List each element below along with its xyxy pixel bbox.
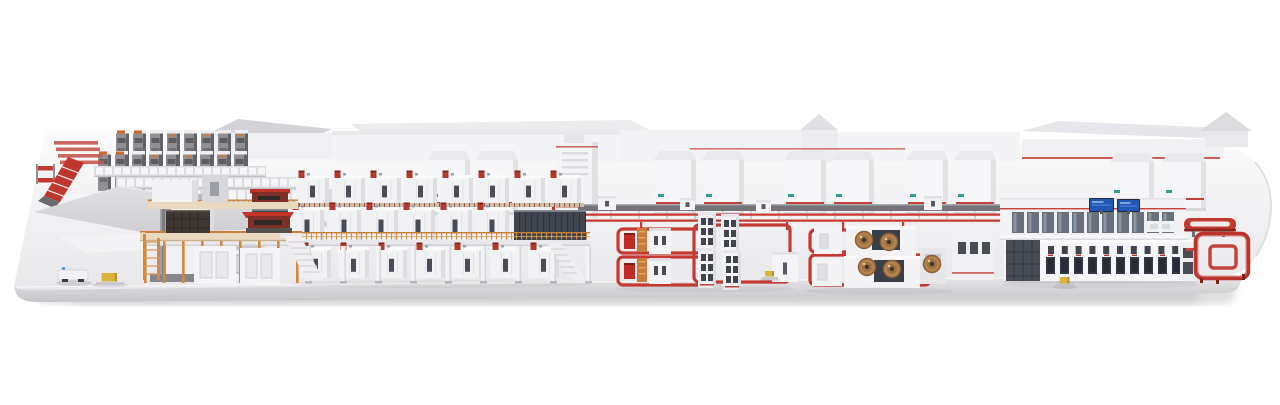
upper-window: [1103, 246, 1109, 254]
white-unit-window: [958, 242, 966, 254]
module-vent: [301, 205, 304, 208]
walkway-tick: [549, 203, 550, 207]
coil-machine-top: [844, 256, 920, 259]
shelf-cell: [249, 168, 256, 175]
upper-window: [1076, 246, 1082, 254]
winder-slot: [654, 236, 658, 245]
shelf-cell: [114, 168, 121, 175]
tower-cap: [723, 250, 741, 253]
rack-cap: [166, 151, 179, 155]
lower-window-inner: [1104, 259, 1110, 272]
red-shelf-bar: [56, 148, 100, 152]
tower-window: [701, 254, 706, 261]
module-red-valve: [404, 204, 410, 211]
module-seam: [511, 253, 512, 274]
vent-top-unit: [564, 135, 584, 143]
module-valve-cap: [299, 171, 305, 173]
shelf-cell: [258, 168, 265, 175]
module-side: [505, 178, 509, 203]
module-vent: [379, 173, 382, 176]
module-side: [365, 250, 369, 278]
module-vent: [343, 173, 346, 176]
cabinet-roof: [906, 151, 948, 160]
rack-band: [237, 138, 245, 143]
walkway-tick: [314, 203, 315, 207]
rack-cap: [167, 130, 180, 134]
module-red-valve: [515, 172, 521, 179]
module-seam: [560, 181, 561, 199]
module-vent: [449, 205, 452, 208]
walkway-tick: [319, 203, 320, 207]
module-seam: [344, 181, 345, 199]
coil-glint: [928, 260, 930, 262]
coil-box-door: [818, 264, 827, 280]
coil-box-door: [820, 234, 828, 248]
cabinet-roof: [784, 151, 826, 160]
tower-side: [713, 212, 716, 252]
shelf-cell: [177, 168, 184, 175]
module-red-valve: [330, 204, 336, 211]
module-valve-cap: [407, 171, 413, 173]
module-red-valve: [551, 172, 557, 179]
red-track-line: [566, 220, 1008, 222]
glass-reflection: [1134, 213, 1137, 232]
walkway-tick: [519, 203, 520, 207]
module-seam: [549, 253, 550, 274]
module-side: [403, 250, 407, 278]
walkway-tick: [579, 203, 580, 207]
mezz-module-side: [192, 180, 198, 202]
module-seam: [426, 181, 427, 199]
rack-cap: [234, 151, 247, 155]
cluster-shadow: [805, 288, 955, 295]
module-seam: [534, 181, 535, 199]
walkway-tick: [459, 203, 460, 207]
module-valve-cap: [443, 171, 449, 173]
module-side: [327, 250, 331, 278]
shelf-cell: [231, 168, 238, 175]
cabinet-roof: [1162, 153, 1206, 162]
upper-window: [1172, 246, 1178, 254]
module-side: [357, 210, 361, 240]
walkway-tick: [569, 203, 570, 207]
station-top: [772, 252, 798, 255]
walkway-tick: [544, 203, 545, 207]
vent-red-stripe: [556, 146, 598, 148]
module-side: [441, 250, 445, 278]
screen-line: [1092, 205, 1111, 206]
coil-glint: [860, 236, 862, 238]
tower-window: [733, 266, 738, 273]
rack-band: [117, 159, 125, 164]
cabinet-roof: [476, 151, 518, 160]
module-red-valve: [479, 172, 485, 179]
walkway-tick: [529, 203, 530, 207]
module-seam: [435, 253, 436, 274]
walkway-tick: [304, 203, 305, 207]
frame-rung: [639, 231, 646, 233]
walkway-tick: [429, 203, 430, 207]
station-top: [680, 198, 695, 201]
column-shade: [415, 246, 417, 283]
lower-window-inner: [1118, 259, 1124, 272]
rack-cap: [184, 130, 197, 134]
machine-shadow: [1000, 282, 1200, 289]
module-seam: [318, 181, 319, 199]
cabinet-roof: [954, 151, 996, 160]
coater-roll-upper: [258, 196, 280, 200]
loop-leg: [1242, 274, 1245, 280]
module-door: [342, 220, 347, 234]
red-conveyor-stripe: [1190, 222, 1230, 227]
end-panel-rib: [555, 213, 556, 238]
walkway-tick: [514, 203, 515, 207]
tower-window: [733, 276, 738, 283]
screen-graph: [1120, 202, 1131, 204]
red-conveyor-lip: [1184, 229, 1236, 232]
column-shade: [520, 246, 522, 283]
walkway-tick: [384, 203, 385, 207]
walkway-tick: [484, 203, 485, 207]
cabinet-logo: [1114, 190, 1120, 193]
deck-edge: [146, 245, 590, 247]
module-door: [465, 259, 470, 272]
column-shade: [345, 246, 347, 283]
line-shadow: [290, 280, 590, 288]
red-shelf-bar: [58, 154, 102, 158]
module-door: [389, 259, 394, 272]
glass-reflection: [1014, 213, 1017, 232]
station-top: [598, 196, 616, 199]
tower-window: [708, 254, 713, 261]
station-slot: [605, 201, 609, 207]
module-vent: [451, 173, 454, 176]
mezz-post: [182, 241, 185, 283]
walkway-tick: [574, 203, 575, 207]
end-cap-window: [1183, 262, 1193, 274]
tower-window: [708, 274, 713, 281]
cabinet-logo: [788, 194, 794, 197]
walkway-tick: [394, 203, 395, 207]
module-red-valve: [478, 204, 484, 211]
agv-wheel: [62, 279, 68, 282]
tower-window: [726, 266, 731, 273]
mezz-deck-upper: [148, 202, 298, 209]
module-seam: [397, 253, 398, 274]
red-shelf-bar: [54, 141, 98, 145]
walkway-tick: [399, 203, 400, 207]
cabinet-red-stripe: [704, 202, 742, 204]
dark-wall-edge: [166, 210, 210, 212]
tower-window: [731, 230, 736, 237]
module-door: [490, 186, 495, 198]
rack-band: [202, 159, 210, 164]
rack-band: [100, 178, 108, 182]
module-side: [325, 178, 329, 203]
shelf-cell: [195, 168, 202, 175]
module-red-valve: [299, 172, 305, 179]
right-assembly-section: [1000, 198, 1196, 284]
rack-band: [135, 138, 143, 143]
red-line-buildings: [690, 148, 905, 150]
coil-core: [887, 240, 891, 244]
rack-orange-dash: [204, 135, 209, 137]
shelf-cell: [204, 168, 211, 175]
agv-wheel: [78, 279, 84, 282]
end-panel-rib: [579, 213, 580, 238]
rack-band: [134, 159, 142, 164]
rack-cap: [132, 151, 145, 155]
module-door: [305, 220, 310, 234]
shelf-cell: [253, 179, 260, 187]
pallet-box: [102, 273, 117, 282]
module-valve-cap: [478, 203, 484, 205]
tower-window: [731, 220, 736, 227]
cluster-shadow: [615, 286, 795, 293]
module-valve-cap: [335, 171, 341, 173]
lower-window-inner: [1076, 259, 1082, 272]
coil-core: [865, 265, 869, 269]
column-shade: [590, 246, 592, 283]
feeder-slot: [1150, 224, 1158, 229]
walkway-tick: [309, 203, 310, 207]
upper-window: [1117, 246, 1123, 254]
module-door: [416, 220, 421, 234]
walkway-tick: [354, 203, 355, 207]
module-seam: [354, 181, 355, 199]
rack-band: [219, 159, 227, 164]
module-red-valve: [455, 244, 461, 251]
rack-band: [168, 159, 176, 164]
cabinet-logo: [910, 194, 916, 197]
station-top: [924, 196, 942, 199]
module-vent: [387, 245, 390, 248]
rack-cap: [217, 151, 230, 155]
gallery-sill-shadow: [1000, 239, 1188, 241]
module-seam: [473, 253, 474, 274]
winder-red-cap: [624, 233, 635, 235]
glass-reflection: [1029, 213, 1032, 232]
module-red-valve: [371, 172, 377, 179]
walkway-tick: [554, 203, 555, 207]
shelf-cell: [136, 179, 143, 187]
glass-reflection: [1119, 213, 1122, 232]
column-shade: [380, 246, 382, 283]
module-seam: [390, 181, 391, 199]
rack-cap: [200, 151, 213, 155]
shelf-cell: [105, 168, 112, 175]
tower-cap: [698, 212, 716, 215]
winder-slot: [662, 266, 666, 275]
tower-window: [724, 240, 729, 247]
module-valve-cap: [515, 171, 521, 173]
module-vent: [463, 245, 466, 248]
end-panel-rib: [549, 213, 550, 238]
walkway-tick: [349, 203, 350, 207]
module-seam: [462, 181, 463, 199]
module-valve-cap: [379, 243, 385, 245]
loop-leg: [1200, 278, 1203, 283]
cabinet-door: [261, 254, 272, 278]
module-door: [562, 186, 567, 198]
rack-orange-dash: [152, 156, 157, 158]
lower-window-inner: [1048, 259, 1054, 272]
cabinet-logo: [958, 194, 964, 197]
module-valve-cap: [367, 203, 373, 205]
module-seam: [387, 253, 388, 274]
rack-orange-cap: [134, 131, 142, 134]
module-valve-cap: [551, 171, 557, 173]
lower-window-inner: [1132, 259, 1138, 272]
gable-mid: [800, 114, 838, 130]
gable-right-face: [1206, 131, 1248, 147]
frame-rung: [639, 243, 646, 245]
module-valve-cap: [330, 203, 336, 205]
walkway-tick: [504, 203, 505, 207]
shelf-cell: [235, 179, 242, 187]
tower-window: [708, 238, 713, 245]
feeder-slot: [1162, 224, 1170, 229]
tower-window: [701, 218, 706, 225]
winder-slot: [662, 236, 666, 245]
winder-box: [649, 230, 671, 254]
frame-rung: [639, 273, 646, 275]
end-panel-rib: [573, 213, 574, 238]
shelf-cell: [262, 179, 269, 187]
column-shade: [450, 246, 452, 283]
shelf-edge: [94, 176, 266, 177]
mezz-deck-edge: [140, 240, 302, 241]
end-panel-rib: [525, 213, 526, 238]
module-door: [490, 220, 495, 234]
rack-orange-dash: [238, 135, 243, 137]
rack-orange-dash: [186, 156, 191, 158]
shelf-cell: [123, 168, 130, 175]
building-2-eave: [332, 131, 620, 135]
module-red-valve: [335, 172, 341, 179]
module-vent: [559, 173, 562, 176]
shelf-cell: [238, 191, 245, 201]
pallet-box-side: [115, 273, 117, 282]
tower-window: [708, 228, 713, 235]
module-side: [361, 178, 365, 203]
module-door: [541, 259, 546, 272]
tower-side: [738, 250, 741, 290]
agv-light: [62, 268, 65, 270]
module-seam: [425, 253, 426, 274]
module-vent: [415, 173, 418, 176]
module-door: [382, 186, 387, 198]
winder-box-top: [649, 228, 671, 231]
tower-window: [726, 276, 731, 283]
upper-window: [1131, 246, 1137, 254]
walkway-tick: [469, 203, 470, 207]
winder-slot: [654, 266, 658, 275]
lower-window-inner: [1090, 259, 1096, 272]
rack-orange-dash: [170, 135, 175, 137]
cabinet-roof: [428, 151, 470, 160]
walkway-tick: [564, 203, 565, 207]
upper-window: [1158, 246, 1164, 254]
pallet-box-side: [772, 271, 774, 277]
shelf-cell: [244, 179, 251, 187]
winder-box-top: [649, 258, 671, 261]
walkway-tick: [364, 203, 365, 207]
station-slot: [762, 204, 766, 209]
module-vent: [307, 173, 310, 176]
rack-orange-cap: [116, 152, 124, 155]
window-red-tick: [1104, 255, 1109, 257]
frame-rung: [639, 237, 646, 239]
rack-cap: [149, 151, 162, 155]
module-red-valve: [531, 244, 537, 251]
shelf-cell: [289, 179, 296, 187]
shelf-cell: [150, 168, 157, 175]
module-vent: [487, 173, 490, 176]
module-vent: [539, 245, 542, 248]
shelf-cell: [168, 168, 175, 175]
module-valve-cap: [479, 171, 485, 173]
lower-window-inner: [1174, 259, 1180, 272]
glass-reflection: [1059, 213, 1062, 232]
module-door: [351, 259, 356, 272]
module-door: [346, 186, 351, 198]
vent-slot: [562, 159, 588, 162]
module-vent: [375, 205, 378, 208]
module-side: [541, 178, 545, 203]
stack-box: [38, 172, 53, 177]
upper-window: [1062, 246, 1068, 254]
module-seam: [501, 253, 502, 274]
cabinet-roof: [702, 151, 744, 160]
module-valve-cap: [371, 171, 377, 173]
lower-window-inner: [1062, 259, 1068, 272]
rack-band: [118, 138, 126, 143]
window-red-tick: [1076, 255, 1081, 257]
cabinet-door: [200, 252, 212, 278]
coil-glint: [863, 263, 865, 265]
tower-side: [736, 214, 739, 254]
frame-rung: [639, 267, 646, 269]
module-red-valve: [417, 244, 423, 251]
module-seam: [416, 181, 417, 199]
coil-core: [862, 238, 866, 242]
module-valve-cap: [493, 243, 499, 245]
module-seam: [570, 181, 571, 199]
mezz-module: [152, 180, 198, 202]
end-panel-rib: [543, 213, 544, 238]
rack-band: [185, 159, 193, 164]
cabinet-logo: [1166, 190, 1172, 193]
module-side: [433, 178, 437, 203]
tower-cap: [721, 214, 739, 217]
winder-red-unit: [624, 264, 635, 279]
module-vent: [338, 205, 341, 208]
module-vent: [349, 245, 352, 248]
module-red-valve: [493, 244, 499, 251]
rack-cap: [218, 130, 231, 134]
cabinet-red-stripe: [834, 202, 872, 204]
shelf-cell: [240, 168, 247, 175]
end-panel-edge: [514, 210, 586, 212]
walkway-tick: [324, 203, 325, 207]
tower-red-stripe: [700, 284, 714, 286]
agv-body: [58, 270, 88, 280]
tower-window: [724, 220, 729, 227]
module-door: [427, 259, 432, 272]
walkway-tick: [439, 203, 440, 207]
module-door: [454, 186, 459, 198]
